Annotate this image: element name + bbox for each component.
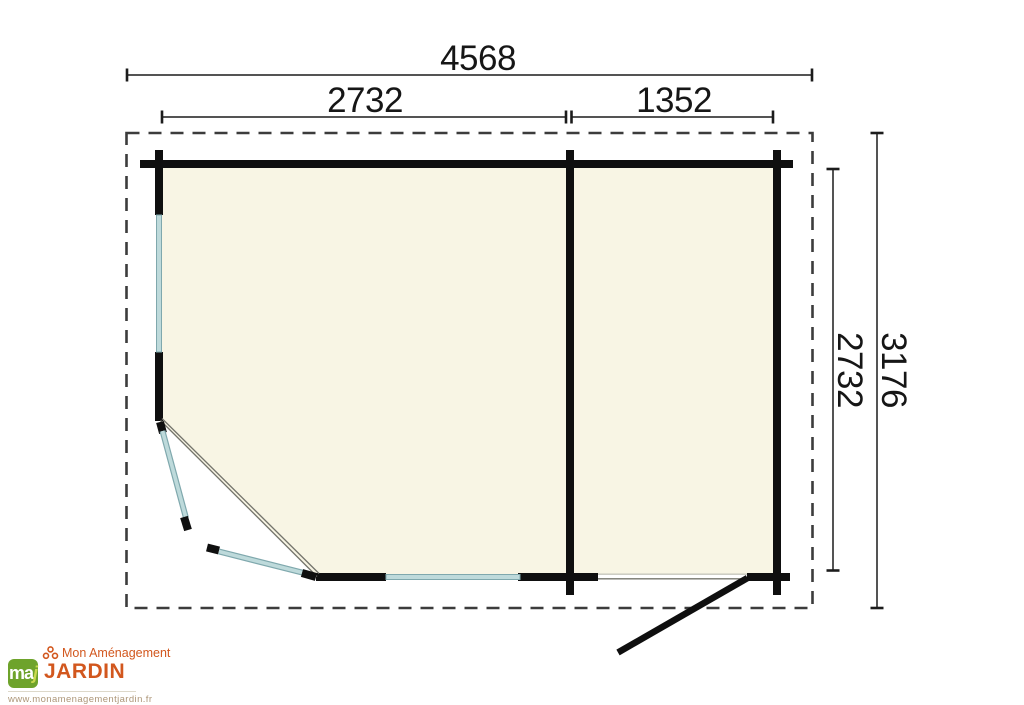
door-leaf-cap — [207, 548, 219, 551]
logo-badge-ma: ma — [9, 663, 33, 683]
floor-plan-page: 4568 2732 1352 2732 3176 maj Mon Aménage… — [0, 0, 1024, 705]
annex-door-opening — [598, 575, 747, 582]
window-left-wall — [157, 215, 162, 352]
floor-area — [159, 164, 781, 577]
logo-tagline: Mon Aménagement — [62, 646, 170, 660]
logo-badge-j: j — [33, 663, 37, 683]
dim-label-overall-width: 4568 — [440, 39, 516, 78]
annex-door-leaf — [618, 578, 748, 653]
door-leaf-glass — [219, 552, 304, 574]
floor-plan-drawing: 4568 2732 1352 2732 3176 — [0, 0, 1024, 705]
logo-brand: Mon Aménagement JARDIN — [44, 646, 170, 683]
dim-label-inner-depth: 2732 — [830, 332, 869, 408]
logo-brand-name: JARDIN — [44, 660, 170, 683]
dim-label-overall-depth: 3176 — [874, 332, 913, 408]
vendor-logo: maj Mon Aménagement JARDIN www.monamenag… — [8, 646, 136, 705]
door-leaf-cap — [302, 573, 316, 577]
window-front-wall — [386, 575, 520, 580]
door-leaf-cap — [184, 517, 188, 530]
clover-icon — [42, 646, 59, 660]
dim-label-main-width: 2732 — [327, 81, 403, 120]
logo-row: maj Mon Aménagement JARDIN — [8, 646, 136, 688]
logo-website: www.monamenagementjardin.fr — [8, 691, 136, 705]
logo-badge: maj — [8, 659, 38, 688]
logo-brand-top: Mon Aménagement — [42, 646, 170, 660]
door-leaf-glass — [163, 431, 187, 518]
dim-label-annex-width: 1352 — [636, 81, 712, 120]
